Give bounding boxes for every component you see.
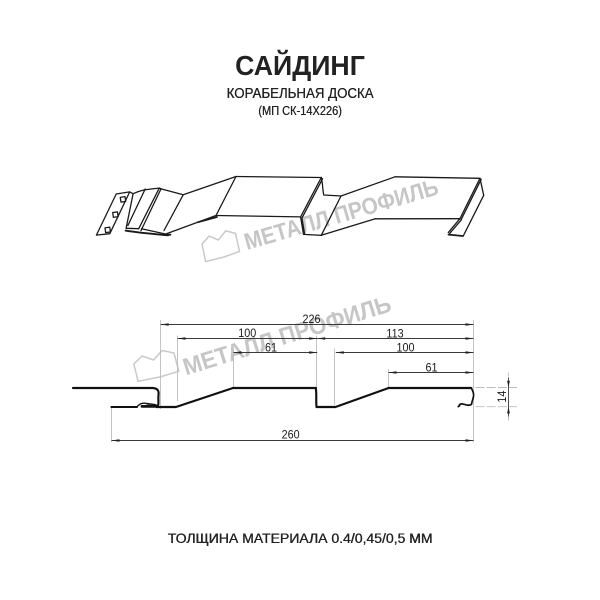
svg-text:14: 14 [496, 390, 509, 403]
svg-text:113: 113 [386, 328, 403, 341]
svg-text:260: 260 [282, 429, 300, 442]
svg-text:100: 100 [238, 327, 256, 340]
svg-text:61: 61 [425, 362, 437, 375]
svg-text:100: 100 [396, 342, 414, 355]
svg-text:226: 226 [302, 313, 320, 326]
svg-text:61: 61 [265, 342, 277, 355]
